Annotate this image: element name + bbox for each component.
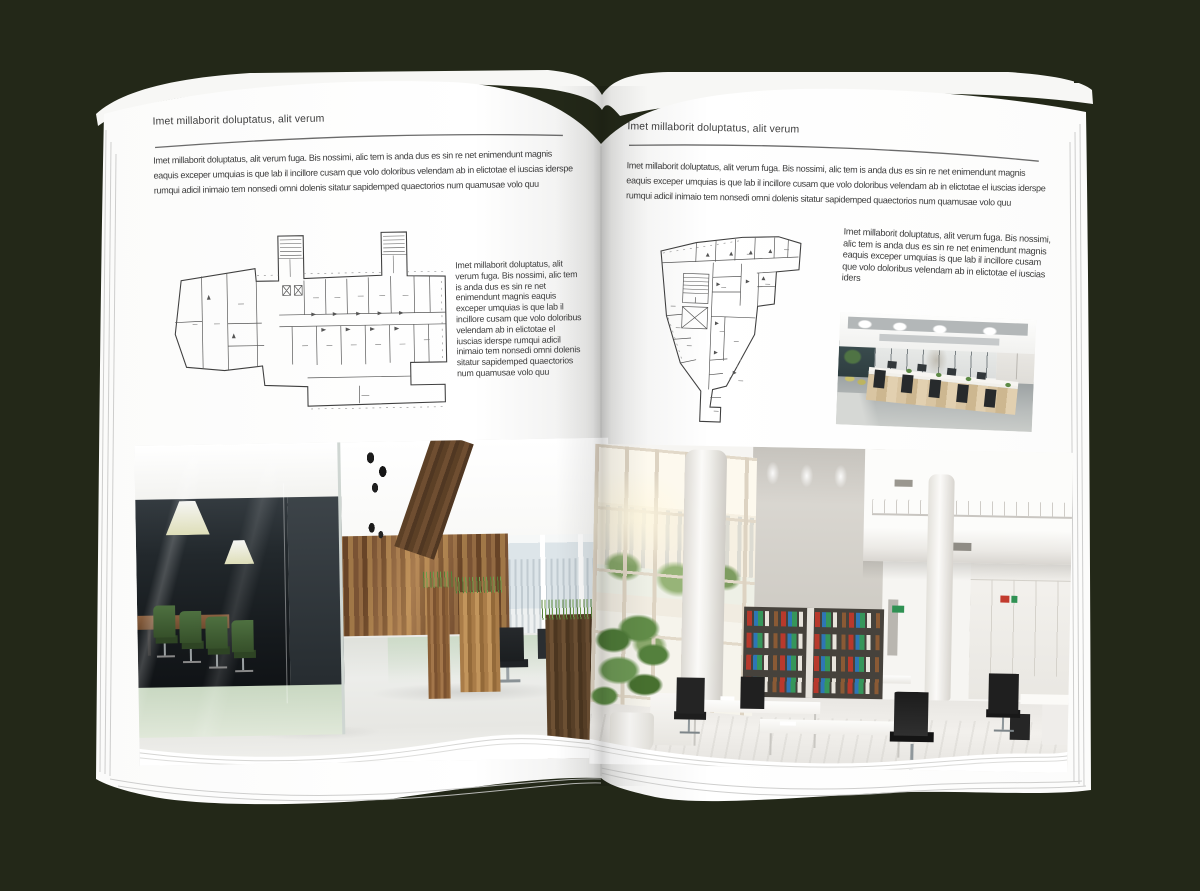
pendant-lamp [224, 540, 254, 565]
glass-meeting-room [134, 442, 345, 738]
green-chair [231, 620, 258, 678]
right-page: Imet millaborit doluptatus, alit verum I… [598, 94, 1082, 813]
left-page: Imet millaborit doluptatus, alit verum I… [128, 80, 614, 803]
door-marks [207, 291, 405, 338]
green-chair [153, 605, 180, 663]
room-annotations [667, 246, 789, 414]
door-marks [701, 247, 772, 376]
floor-plan-wide-drawing [162, 222, 450, 417]
stair-hatching [683, 277, 709, 294]
page-curl-wave [139, 713, 614, 766]
cover-notch [1074, 72, 1083, 83]
magazine-spread-mockup: Imet millaborit doluptatus, alit verum I… [0, 0, 1200, 891]
window-ticks [658, 237, 745, 382]
floor-plan-tall-drawing [642, 221, 817, 427]
intro-paragraph: Imet millaborit doluptatus, alit verum f… [153, 146, 574, 198]
planter-box [459, 592, 501, 693]
interior-walls [658, 234, 799, 401]
office-photo-left [134, 438, 614, 766]
planter-box [427, 586, 451, 698]
floor-plan-left [162, 222, 450, 417]
page-header: Imet millaborit doluptatus, alit verum [627, 120, 799, 135]
pendant-lamp [165, 501, 210, 536]
floor-plan-right [642, 221, 817, 427]
floor-plan-side-text: Imet millaborit doluptatus, alit verum f… [842, 226, 1052, 292]
stair-hatching [278, 236, 407, 277]
wood-cabinet [987, 362, 1027, 411]
side-column: Imet millaborit doluptatus, alit verum f… [835, 226, 1052, 454]
interior-walls [174, 269, 447, 406]
green-chair [205, 616, 232, 674]
floor-plan-side-text: Imet millaborit doluptatus, alit verum f… [455, 258, 583, 379]
office-photo-small [836, 312, 1036, 432]
green-chair [179, 611, 206, 669]
page-header: Imet millaborit doluptatus, alit verum [152, 113, 324, 128]
page-curl-wave [589, 719, 1068, 773]
office-photo-right [589, 444, 1073, 773]
intro-paragraph: Imet millaborit doluptatus, alit verum f… [626, 158, 1047, 211]
